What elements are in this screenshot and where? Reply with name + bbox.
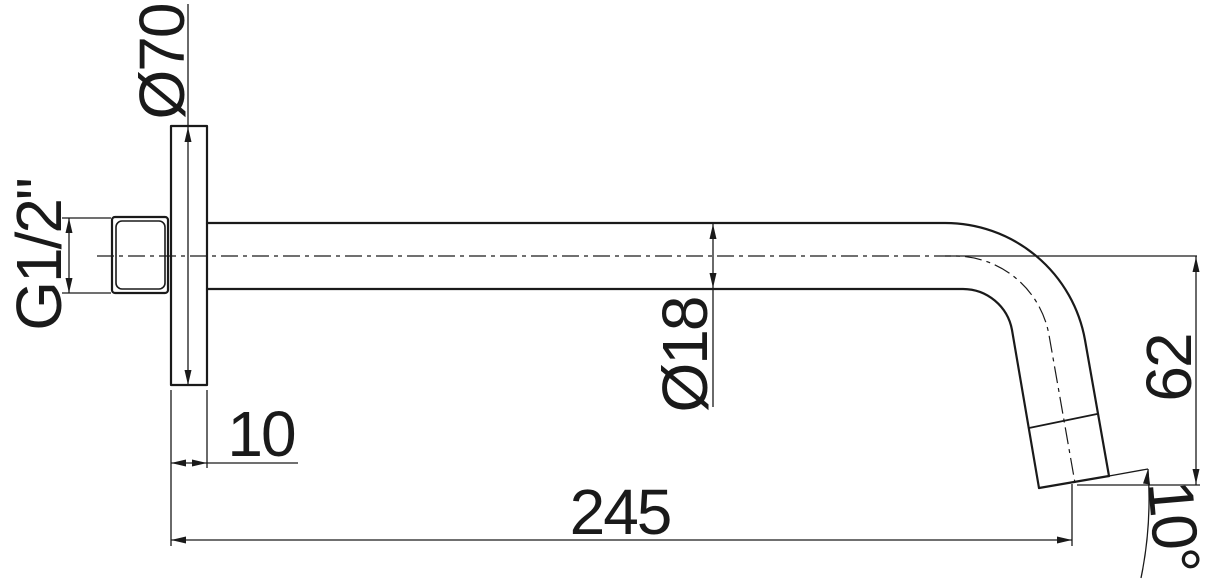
dim-flange-diameter: Ø70 bbox=[126, 4, 198, 385]
arrow-down-icon bbox=[185, 370, 192, 385]
arrow-down-icon bbox=[710, 273, 717, 288]
pipe-diameter-label: Ø18 bbox=[649, 298, 721, 413]
dim-thread: G1/2" bbox=[3, 179, 111, 330]
dim-flange-thickness: 10 bbox=[171, 390, 298, 546]
joint-line bbox=[1029, 414, 1097, 428]
thread-fitting-inner bbox=[116, 221, 165, 289]
projection-length-label: 245 bbox=[570, 476, 671, 548]
technical-drawing-canvas: Ø70 G1/2" 10 245 bbox=[0, 0, 1205, 588]
arrow-right-icon bbox=[1057, 537, 1072, 544]
dim-height: 62 bbox=[945, 256, 1205, 485]
outlet-angle-label: 10° bbox=[1134, 478, 1205, 575]
outlet-face bbox=[1039, 476, 1109, 488]
drop-height-label: 62 bbox=[1133, 334, 1205, 401]
arrow-right-icon bbox=[192, 460, 207, 467]
thread-fitting-outer bbox=[112, 217, 168, 293]
arrow-up-icon bbox=[710, 224, 717, 239]
dim-length: 245 bbox=[171, 476, 1072, 548]
dim-pipe-diameter: Ø18 bbox=[649, 223, 721, 412]
arrow-left-icon bbox=[171, 537, 186, 544]
thread-size-label: G1/2" bbox=[3, 179, 75, 330]
arrow-up-icon bbox=[1193, 257, 1200, 272]
flange-diameter-label: Ø70 bbox=[126, 4, 198, 119]
arrow-left-icon bbox=[171, 460, 186, 467]
pipe-inner-edge bbox=[207, 289, 1039, 488]
ext-line-angle-face bbox=[1109, 469, 1148, 476]
flange-thickness-label: 10 bbox=[227, 398, 295, 470]
shower-arm-drawing: Ø70 G1/2" 10 245 bbox=[0, 0, 1205, 588]
arrow-up-icon bbox=[185, 127, 192, 142]
